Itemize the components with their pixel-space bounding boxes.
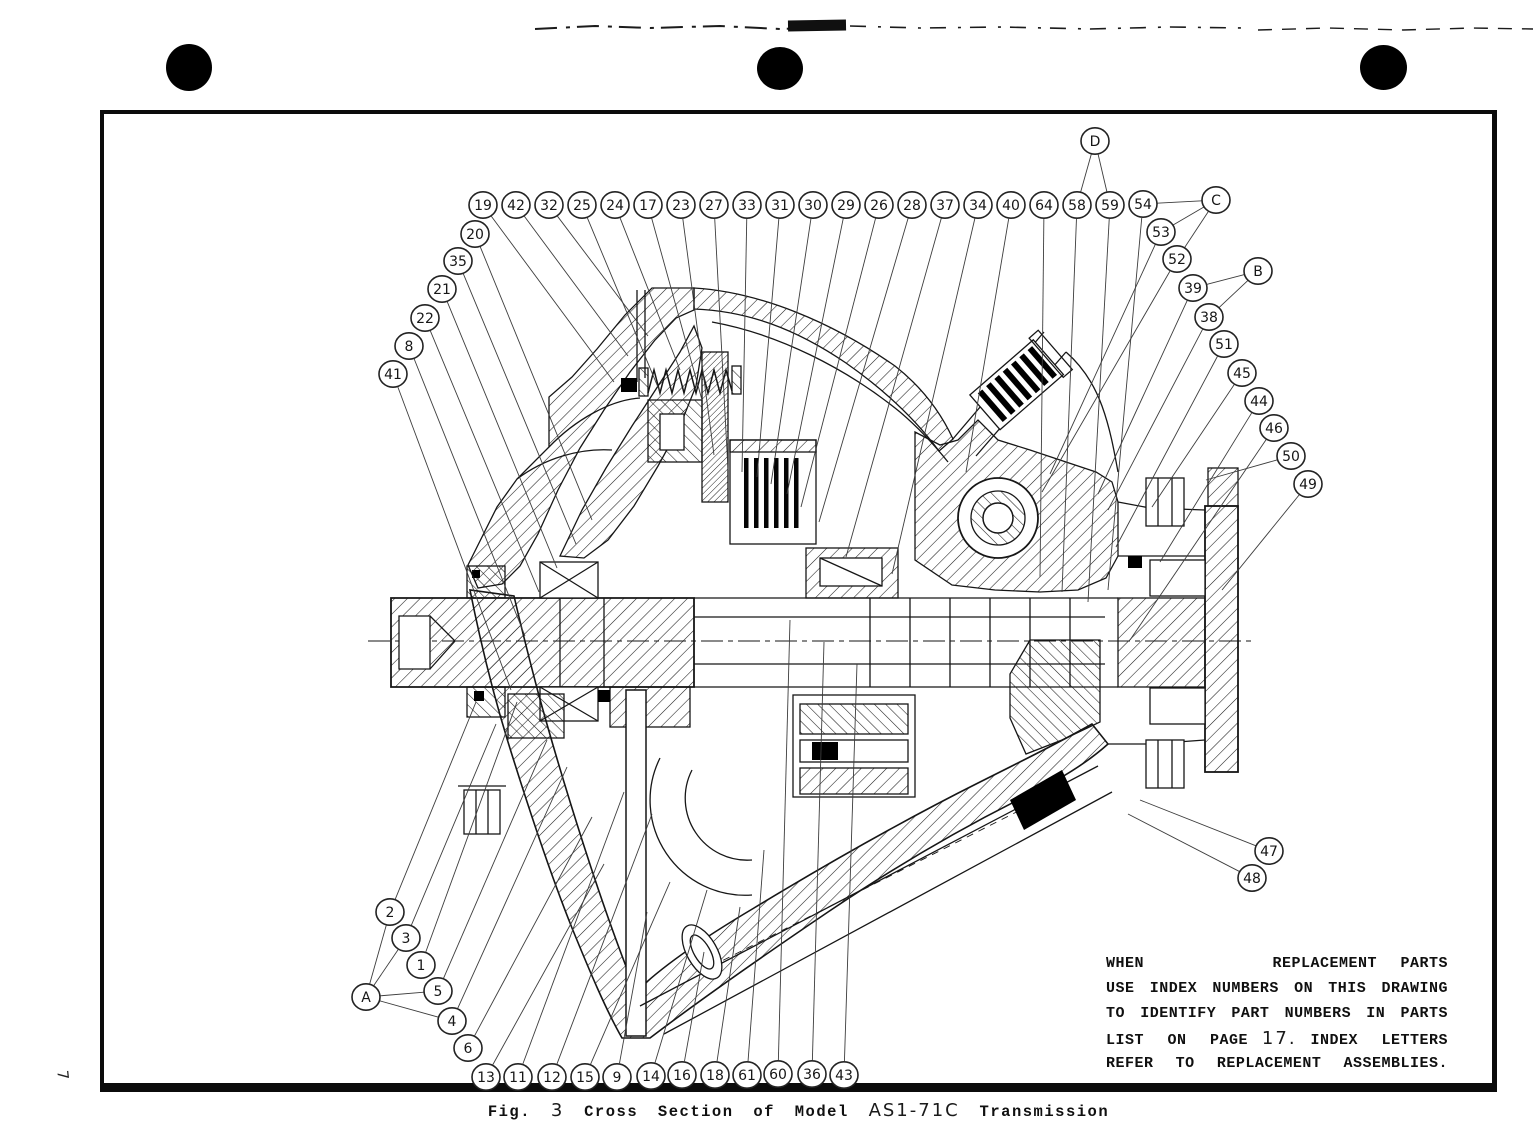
part-callout-61: 61 <box>733 1062 761 1088</box>
svg-text:44: 44 <box>1250 394 1268 410</box>
svg-text:32: 32 <box>540 198 558 214</box>
scan-smudge-marks <box>535 19 1533 31</box>
part-callout-40: 40 <box>997 192 1025 218</box>
part-callout-33: 33 <box>733 192 761 218</box>
note-line-1: WHEN REPLACEMENT PARTS <box>1106 951 1448 976</box>
svg-text:53: 53 <box>1152 225 1170 241</box>
svg-text:36: 36 <box>803 1067 821 1083</box>
part-callout-47: 47 <box>1255 838 1283 864</box>
svg-text:54: 54 <box>1134 197 1152 213</box>
svg-text:19: 19 <box>474 198 492 214</box>
part-callout-13: 13 <box>472 1064 500 1090</box>
svg-text:34: 34 <box>969 198 987 214</box>
part-callout-25: 25 <box>568 192 596 218</box>
figure-caption: Fig. 3 Cross Section of Model AS1-71C Tr… <box>100 1100 1497 1121</box>
note-line-3: TO IDENTIFY PART NUMBERS IN PARTS <box>1106 1001 1448 1026</box>
part-callout-44: 44 <box>1245 388 1273 414</box>
svg-text:33: 33 <box>738 198 756 214</box>
assembly-letter-D: D <box>1081 128 1109 154</box>
svg-text:11: 11 <box>509 1070 527 1086</box>
svg-text:49: 49 <box>1299 477 1317 493</box>
note-text: WHEN <box>1106 951 1144 976</box>
scanned-manual-page: { "page": { "margin_page_number": "7" },… <box>0 0 1538 1141</box>
assembly-letter-B: B <box>1244 258 1272 284</box>
svg-text:40: 40 <box>1002 198 1020 214</box>
part-callout-28: 28 <box>898 192 926 218</box>
assembly-letter-C: C <box>1202 187 1230 213</box>
svg-text:23: 23 <box>672 198 690 214</box>
replacement-parts-note: WHEN REPLACEMENT PARTS USE INDEX NUMBERS… <box>1106 951 1448 1076</box>
part-callout-59: 59 <box>1096 192 1124 218</box>
part-callout-37: 37 <box>931 192 959 218</box>
svg-text:1: 1 <box>417 958 426 974</box>
svg-text:61: 61 <box>738 1068 756 1084</box>
svg-text:30: 30 <box>804 198 822 214</box>
svg-text:13: 13 <box>477 1070 495 1086</box>
part-callout-64: 64 <box>1030 192 1058 218</box>
caption-suffix: Transmission <box>980 1103 1110 1121</box>
pump-housing <box>915 420 1118 592</box>
svg-text:3: 3 <box>402 931 411 947</box>
part-callout-12: 12 <box>538 1064 566 1090</box>
svg-text:60: 60 <box>769 1067 787 1083</box>
svg-text:29: 29 <box>837 198 855 214</box>
output-flange <box>1108 468 1238 788</box>
svg-text:31: 31 <box>771 198 789 214</box>
svg-text:52: 52 <box>1168 252 1186 268</box>
part-callout-31: 31 <box>766 192 794 218</box>
svg-text:41: 41 <box>384 367 402 383</box>
mount-bolt <box>458 786 506 834</box>
assembly-letter-A: A <box>352 984 380 1010</box>
part-callout-23: 23 <box>667 192 695 218</box>
svg-text:A: A <box>361 990 371 1006</box>
svg-text:37: 37 <box>936 198 954 214</box>
part-callout-38: 38 <box>1195 304 1223 330</box>
part-callout-42: 42 <box>502 192 530 218</box>
svg-text:46: 46 <box>1265 421 1283 437</box>
svg-text:59: 59 <box>1101 198 1119 214</box>
model-number: AS1-71C <box>869 1100 960 1121</box>
part-callout-26: 26 <box>865 192 893 218</box>
part-callout-29: 29 <box>832 192 860 218</box>
svg-text:17: 17 <box>639 198 657 214</box>
svg-text:12: 12 <box>543 1070 561 1086</box>
svg-text:2: 2 <box>386 905 395 921</box>
svg-text:51: 51 <box>1215 337 1233 353</box>
part-callout-3: 3 <box>392 925 420 951</box>
part-callout-8: 8 <box>395 333 423 359</box>
note-line-5: REFER TO REPLACEMENT ASSEMBLIES. <box>1106 1051 1448 1076</box>
case-split-plate <box>626 690 646 1036</box>
part-callout-22: 22 <box>411 305 439 331</box>
part-callout-54: 54 <box>1129 191 1157 217</box>
part-callout-6: 6 <box>454 1035 482 1061</box>
svg-text:5: 5 <box>434 984 443 1000</box>
part-callout-2: 2 <box>376 899 404 925</box>
svg-text:28: 28 <box>903 198 921 214</box>
part-callout-1: 1 <box>407 952 435 978</box>
figure-number: 3 <box>551 1100 564 1121</box>
part-callout-48: 48 <box>1238 865 1266 891</box>
svg-text:26: 26 <box>870 198 888 214</box>
part-callout-19: 19 <box>469 192 497 218</box>
svg-text:38: 38 <box>1200 310 1218 326</box>
part-callout-27: 27 <box>700 192 728 218</box>
svg-text:9: 9 <box>613 1070 622 1086</box>
part-callout-16: 16 <box>668 1062 696 1088</box>
part-callout-30: 30 <box>799 192 827 218</box>
svg-text:42: 42 <box>507 198 525 214</box>
svg-text:43: 43 <box>835 1068 853 1084</box>
page-number: 7 <box>53 1069 72 1080</box>
svg-text:27: 27 <box>705 198 723 214</box>
part-callout-60: 60 <box>764 1061 792 1087</box>
part-callout-35: 35 <box>444 248 472 274</box>
page-reference: 17. <box>1262 1026 1297 1051</box>
input-shaft <box>391 598 694 687</box>
part-callout-11: 11 <box>504 1064 532 1090</box>
svg-text:15: 15 <box>576 1070 594 1086</box>
svg-text:50: 50 <box>1282 449 1300 465</box>
svg-text:48: 48 <box>1243 871 1261 887</box>
svg-text:21: 21 <box>433 282 451 298</box>
part-callout-34: 34 <box>964 192 992 218</box>
part-callout-49: 49 <box>1294 471 1322 497</box>
note-text: INDEX LETTERS <box>1310 1028 1448 1053</box>
svg-text:D: D <box>1090 134 1101 150</box>
part-callout-51: 51 <box>1210 331 1238 357</box>
note-line-4: LIST ON PAGE 17. INDEX LETTERS <box>1106 1026 1448 1051</box>
part-callout-9: 9 <box>603 1064 631 1090</box>
part-callout-36: 36 <box>798 1061 826 1087</box>
part-callout-4: 4 <box>438 1008 466 1034</box>
svg-text:47: 47 <box>1260 844 1278 860</box>
part-callout-14: 14 <box>637 1063 665 1089</box>
svg-text:18: 18 <box>706 1068 724 1084</box>
svg-text:24: 24 <box>606 198 624 214</box>
front-bearing-block <box>806 548 898 598</box>
svg-text:25: 25 <box>573 198 591 214</box>
svg-text:16: 16 <box>673 1068 691 1084</box>
svg-text:C: C <box>1211 193 1221 209</box>
part-callout-15: 15 <box>571 1064 599 1090</box>
part-callout-50: 50 <box>1277 443 1305 469</box>
svg-text:8: 8 <box>405 339 414 355</box>
svg-text:58: 58 <box>1068 198 1086 214</box>
note-text: REPLACEMENT PARTS <box>1272 951 1448 976</box>
part-callout-46: 46 <box>1260 415 1288 441</box>
note-line-2: USE INDEX NUMBERS ON THIS DRAWING <box>1106 976 1448 1001</box>
part-callout-52: 52 <box>1163 246 1191 272</box>
part-callout-21: 21 <box>428 276 456 302</box>
part-callout-5: 5 <box>424 978 452 1004</box>
part-callout-53: 53 <box>1147 219 1175 245</box>
note-text: LIST ON PAGE <box>1106 1028 1248 1053</box>
part-callout-18: 18 <box>701 1062 729 1088</box>
svg-text:6: 6 <box>464 1041 473 1057</box>
part-callout-41: 41 <box>379 361 407 387</box>
svg-text:35: 35 <box>449 254 467 270</box>
part-callout-20: 20 <box>461 221 489 247</box>
clutch-pack <box>730 440 816 544</box>
svg-text:4: 4 <box>448 1014 457 1030</box>
svg-text:20: 20 <box>466 227 484 243</box>
part-callout-39: 39 <box>1179 275 1207 301</box>
svg-text:64: 64 <box>1035 198 1053 214</box>
caption-prefix: Fig. <box>488 1103 531 1121</box>
svg-text:22: 22 <box>416 311 434 327</box>
svg-text:B: B <box>1253 264 1263 280</box>
part-callout-24: 24 <box>601 192 629 218</box>
part-callout-32: 32 <box>535 192 563 218</box>
part-callout-58: 58 <box>1063 192 1091 218</box>
caption-body: Cross Section of Model <box>584 1103 849 1121</box>
part-callout-45: 45 <box>1228 360 1256 386</box>
svg-text:14: 14 <box>642 1069 660 1085</box>
svg-text:39: 39 <box>1184 281 1202 297</box>
svg-text:45: 45 <box>1233 366 1251 382</box>
part-callout-17: 17 <box>634 192 662 218</box>
part-callout-43: 43 <box>830 1062 858 1088</box>
